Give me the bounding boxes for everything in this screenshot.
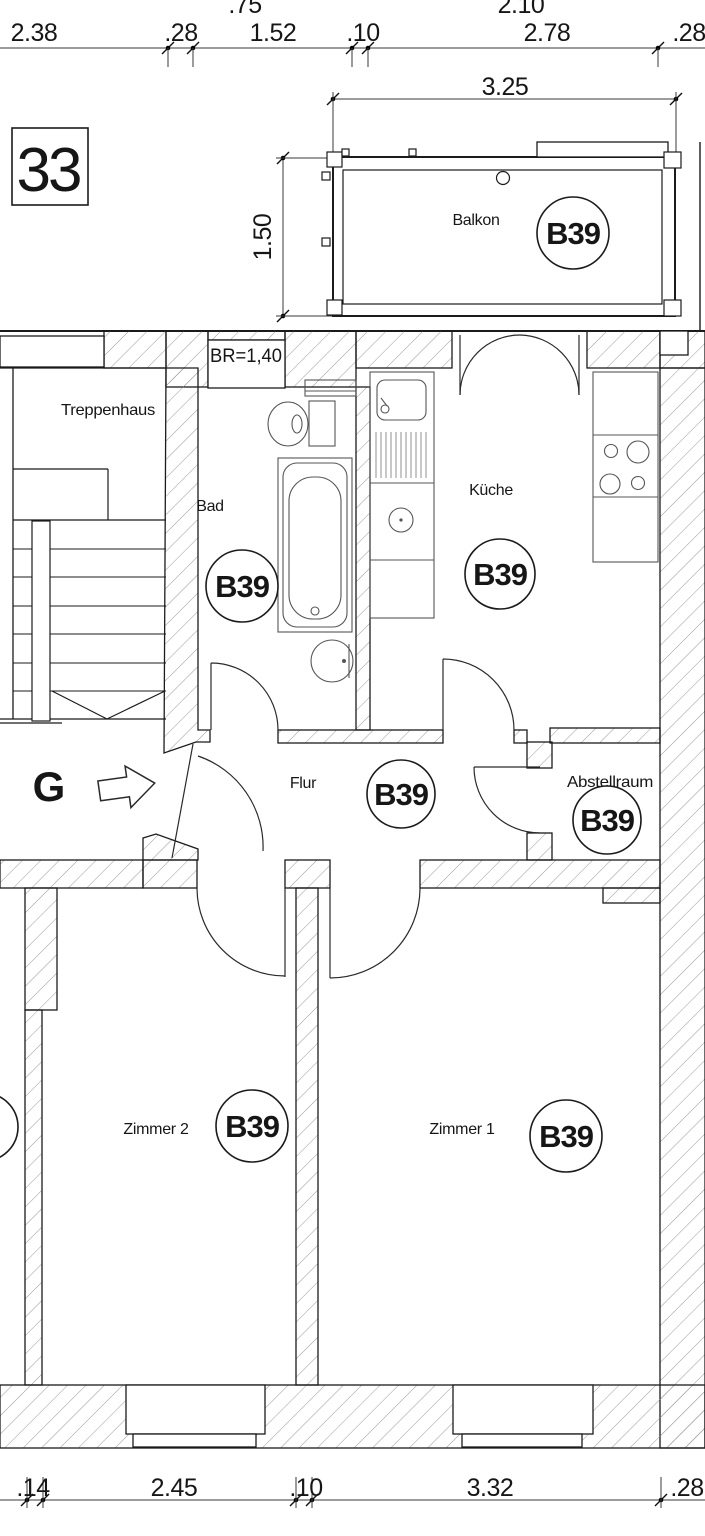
dim-balcony-width: 3.25 [482, 73, 529, 101]
unit-badge-flur: B39 [367, 760, 435, 828]
floor-plan-svg: .75 2.10 2.38 .28 1.52 .10 2.78 .28 3.25… [0, 0, 705, 1536]
dim-top-partial-1: .75 [228, 0, 261, 19]
stair-direction-arrow [52, 691, 165, 719]
stairwell-window [0, 336, 104, 367]
staircase: Treppenhaus G [0, 368, 166, 812]
window-zimmer1 [453, 1385, 593, 1434]
svg-text:B39: B39 [215, 569, 270, 604]
dimension-balcony-depth: 1.50 [249, 152, 334, 322]
svg-text:B39: B39 [546, 216, 601, 251]
unit-number-label: 33 [17, 136, 80, 205]
room-label-zimmer1: Zimmer 1 [429, 1121, 495, 1138]
zimmer1-door [330, 888, 420, 978]
wall-right-exterior [660, 368, 705, 1448]
dim-bottom-5: .28 [670, 1474, 703, 1502]
dim-bottom-3: .10 [289, 1474, 322, 1502]
room-label-bad: Bad [196, 498, 224, 515]
floor-plan: .75 2.10 2.38 .28 1.52 .10 2.78 .28 3.25… [0, 0, 705, 1536]
dim-ticks-top [162, 42, 664, 67]
unit-badge-zimmer2: B39 [216, 1090, 288, 1162]
dim-balcony-depth: 1.50 [249, 214, 277, 261]
window-zimmer1-sill [462, 1434, 582, 1447]
kitchen-stove-counter-icon [593, 372, 658, 562]
wall-bad-kueche [356, 387, 370, 730]
kueche-door [443, 659, 514, 730]
room-label-kueche: Küche [469, 482, 513, 499]
unit-number-box: 33 [12, 128, 88, 205]
dim-bottom-2: 2.45 [151, 1474, 198, 1502]
dim-bottom-1: .14 [16, 1474, 50, 1502]
kitchen-sink-counter-icon [370, 372, 434, 618]
floor-marker-g: G [33, 763, 66, 810]
entry-direction-arrow-icon [96, 762, 157, 811]
room-label-treppenhaus: Treppenhaus [61, 402, 155, 419]
window-zimmer2 [126, 1385, 265, 1434]
wall-bottom-exterior [0, 1385, 705, 1448]
abstellraum-door [474, 767, 540, 833]
bathroom-fixtures [268, 380, 356, 682]
balcony-drain-icon [497, 172, 510, 185]
dim-top-1: 2.38 [11, 19, 58, 47]
room-label-balkon: Balkon [452, 212, 499, 229]
bathtub-icon [278, 458, 352, 632]
bad-door [211, 663, 278, 730]
neighbor-badge-partial [0, 1093, 18, 1161]
stair-railing [32, 521, 50, 721]
room-label-flur: Flur [290, 775, 317, 792]
dimension-chain-top: .75 2.10 2.38 .28 1.52 .10 2.78 .28 [0, 0, 705, 67]
wall-partition-zimmer [296, 888, 318, 1385]
toilet-icon [268, 401, 335, 446]
zimmer2-door [197, 888, 285, 977]
dim-top-partial-2: 2.10 [498, 0, 545, 19]
dim-top-6: .28 [672, 19, 705, 47]
balcony-double-door [460, 335, 579, 395]
unit-badge-abstellraum: B39 [573, 786, 641, 854]
unit-badge-zimmer1: B39 [530, 1100, 602, 1172]
dim-top-3: 1.52 [250, 19, 297, 47]
dim-top-2: .28 [164, 19, 197, 47]
window-zimmer2-sill [133, 1434, 256, 1447]
dim-bottom-4: 3.32 [467, 1474, 514, 1502]
svg-text:B39: B39 [539, 1119, 594, 1154]
dimension-chain-bottom: .14 2.45 .10 3.32 .28 [0, 1474, 705, 1508]
dim-top-4: .10 [346, 19, 379, 47]
room-balkon: Balkon B39 [322, 142, 700, 330]
balcony-door-note: BR=1,40 [210, 346, 282, 367]
wall-treppenhaus-bad [164, 368, 210, 753]
wall-entry-jamb [143, 834, 198, 860]
unit-badge-kueche: B39 [465, 539, 535, 609]
balcony-roof-edge [537, 142, 668, 157]
apartment-entrance-door [172, 744, 263, 858]
room-labels: Bad B39 Küche B39 Flur B39 Abstellraum B… [0, 482, 653, 1172]
washbasin-icon [311, 640, 353, 682]
svg-text:B39: B39 [225, 1109, 280, 1144]
dim-top-5: 2.78 [524, 19, 571, 47]
unit-badge-bad: B39 [206, 550, 278, 622]
svg-text:B39: B39 [374, 777, 429, 812]
svg-text:B39: B39 [473, 557, 528, 592]
svg-text:B39: B39 [580, 803, 635, 838]
unit-badge-balkon: B39 [537, 197, 609, 269]
dim-ticks-bottom [21, 1477, 667, 1508]
room-label-zimmer2: Zimmer 2 [123, 1121, 189, 1138]
